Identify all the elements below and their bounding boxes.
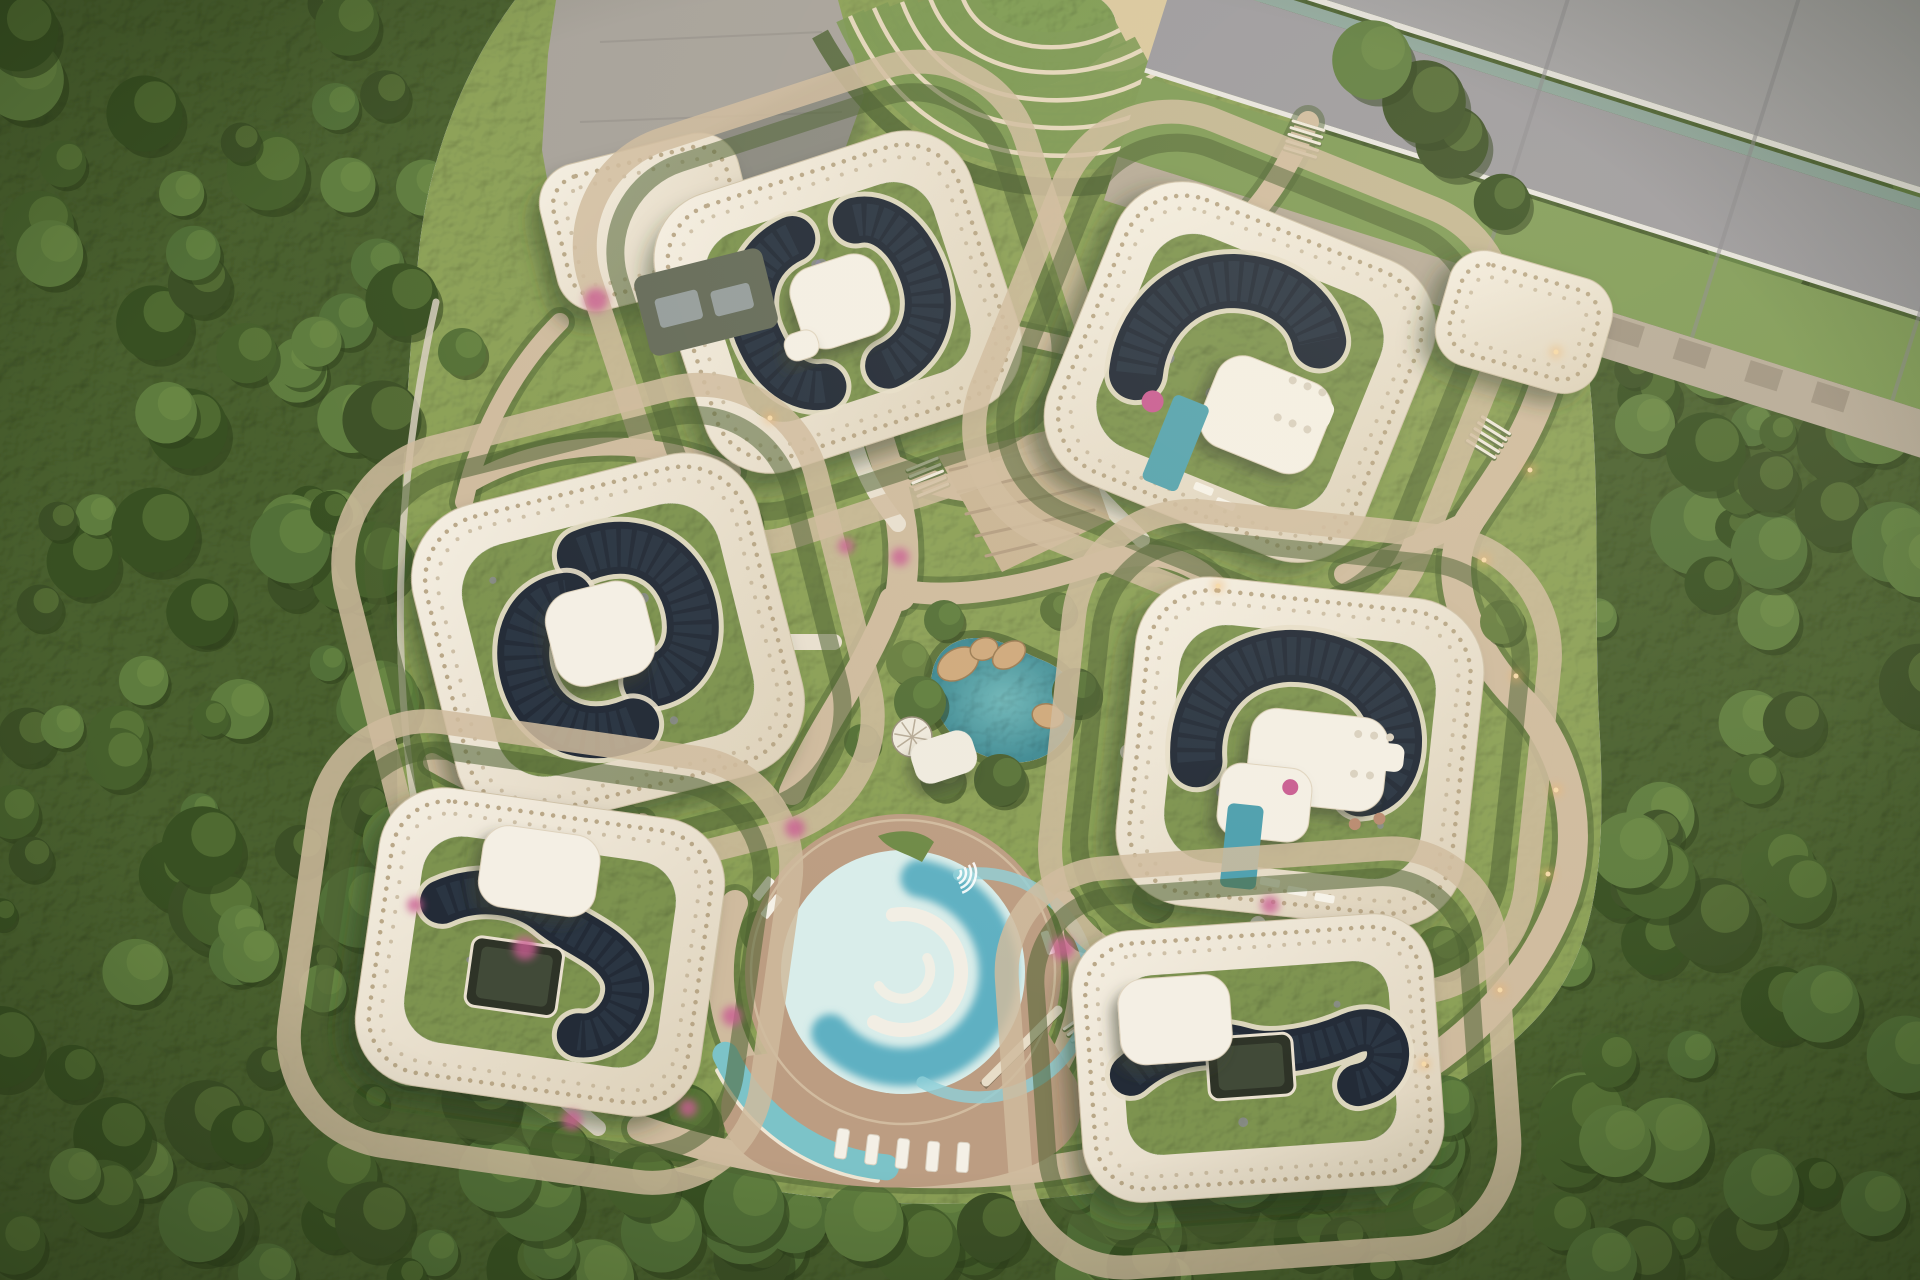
aerial-render-canvas — [0, 0, 1920, 1280]
aerial-site-render — [0, 0, 1920, 1280]
vignette — [0, 0, 1920, 1280]
